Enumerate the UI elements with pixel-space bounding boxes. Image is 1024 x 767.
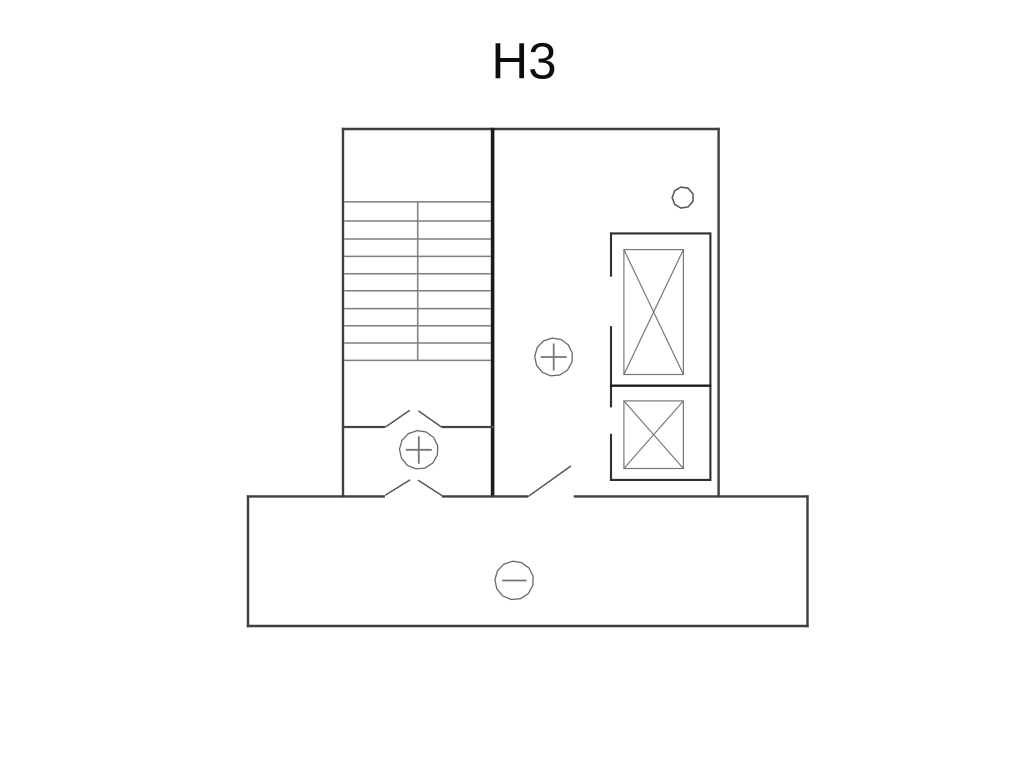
svg-text:H3: H3 (491, 33, 556, 90)
